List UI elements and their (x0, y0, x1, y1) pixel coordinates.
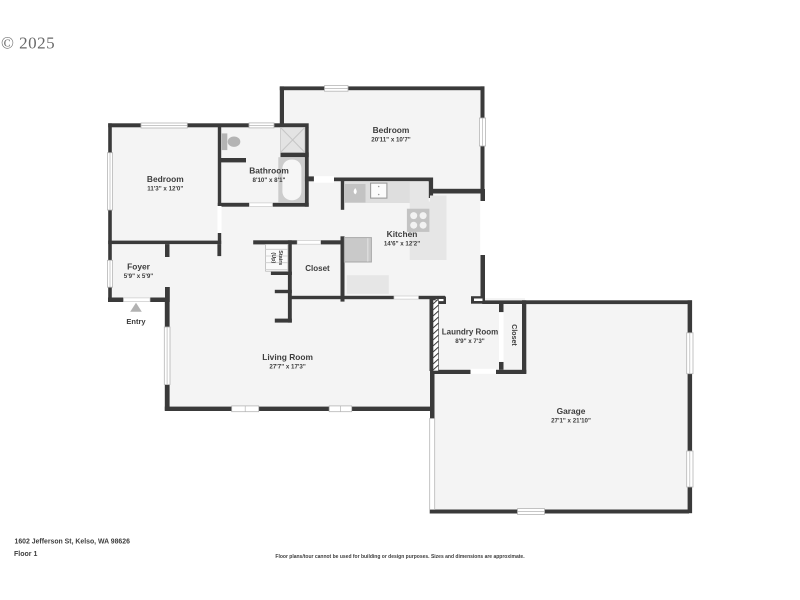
svg-text:Stairs(Up): Stairs(Up) (270, 250, 283, 265)
svg-text:Closet: Closet (305, 264, 330, 273)
svg-text:Closet: Closet (510, 324, 517, 346)
svg-text:27'7" x 17'3": 27'7" x 17'3" (269, 364, 305, 371)
svg-text:Garage: Garage (557, 406, 586, 416)
svg-text:© 2025: © 2025 (1, 34, 55, 53)
svg-text:1602 Jefferson St, Kelso, WA 9: 1602 Jefferson St, Kelso, WA 98626 (15, 539, 131, 546)
svg-text:Entry: Entry (126, 317, 146, 326)
svg-text:27'1" x 21'10": 27'1" x 21'10" (551, 418, 591, 425)
svg-text:Bathroom: Bathroom (249, 166, 289, 176)
svg-text:Foyer: Foyer (127, 262, 151, 272)
svg-text:8'10" x 8'1": 8'10" x 8'1" (253, 177, 286, 184)
svg-text:Floor 1: Floor 1 (14, 551, 37, 558)
svg-text:11'3" x 12'0": 11'3" x 12'0" (147, 186, 183, 193)
svg-text:Kitchen: Kitchen (387, 229, 418, 239)
svg-text:5'9" x 5'9": 5'9" x 5'9" (124, 273, 154, 280)
svg-text:Laundry Room: Laundry Room (442, 328, 498, 337)
svg-text:14'6" x 12'2": 14'6" x 12'2" (384, 241, 420, 248)
svg-text:Bedroom: Bedroom (373, 125, 410, 135)
svg-text:Living Room: Living Room (262, 352, 313, 362)
svg-text:Bedroom: Bedroom (147, 174, 184, 184)
svg-text:Floor plans/tour cannot be use: Floor plans/tour cannot be used for buil… (275, 554, 525, 560)
svg-text:20'11" x 10'7": 20'11" x 10'7" (371, 137, 411, 144)
svg-text:8'9" x 7'3": 8'9" x 7'3" (455, 338, 485, 345)
